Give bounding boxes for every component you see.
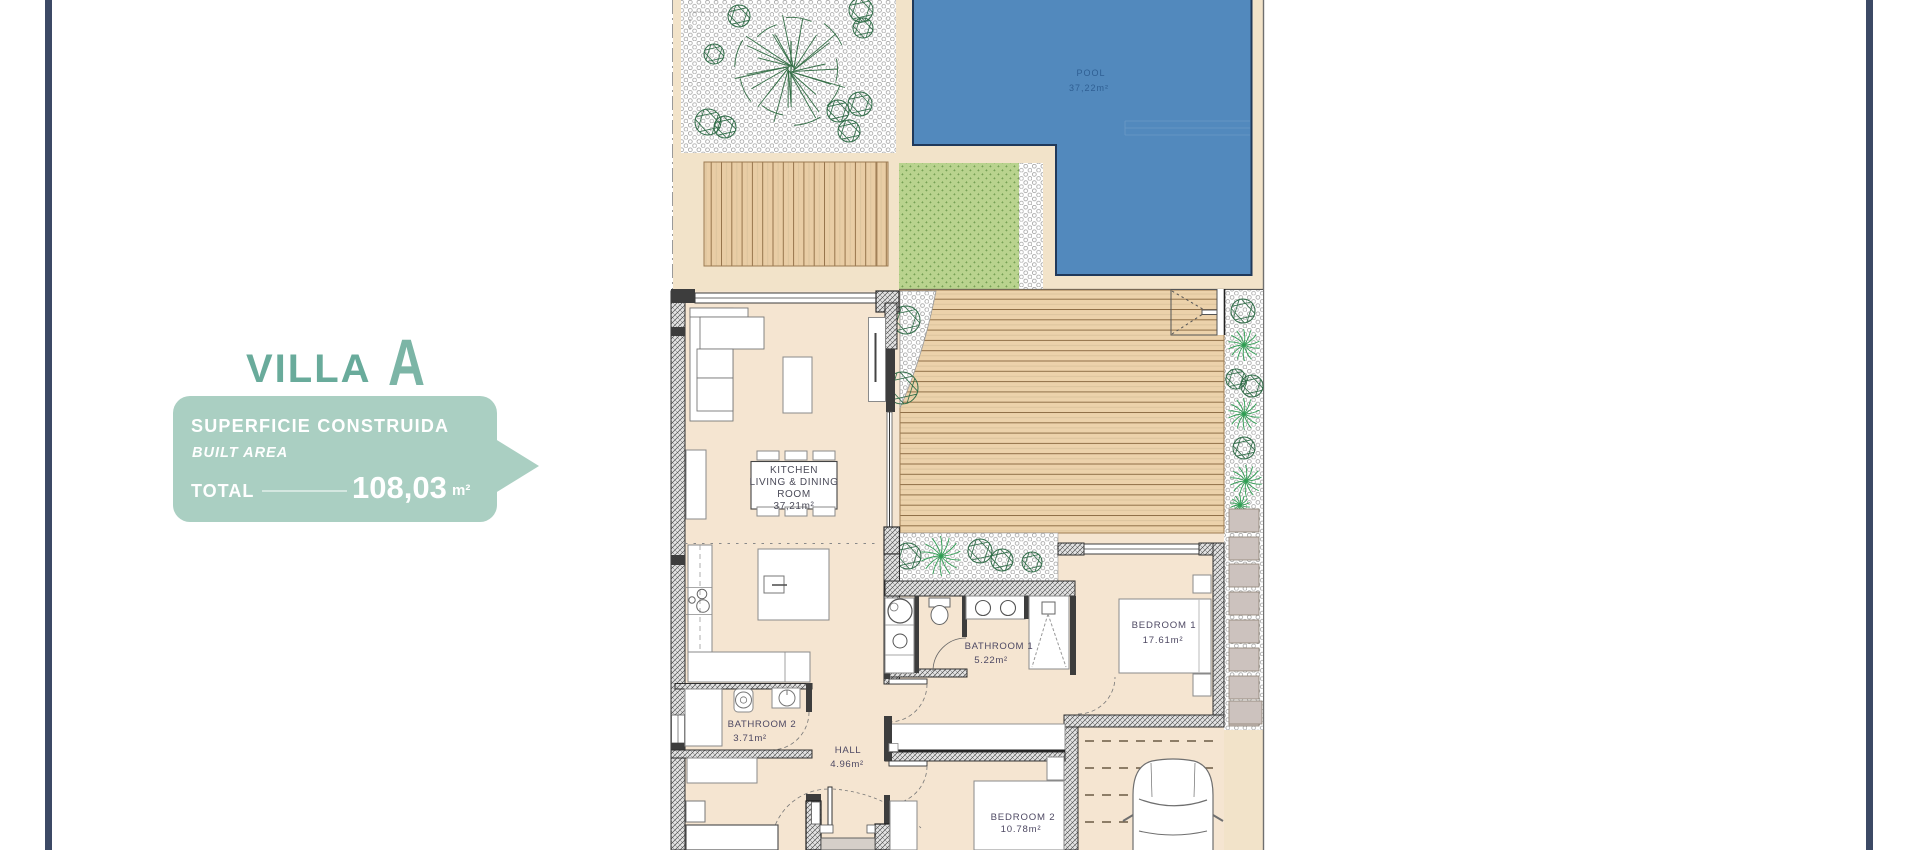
svg-text:SUPERFICIE CONSTRUIDA: SUPERFICIE CONSTRUIDA	[191, 416, 449, 436]
svg-text:BUILT AREA: BUILT AREA	[192, 445, 288, 461]
svg-text:HALL: HALL	[835, 745, 861, 756]
svg-text:VILLA: VILLA	[246, 347, 372, 391]
svg-text:BATHROOM 1: BATHROOM 1	[965, 641, 1034, 652]
svg-text:BEDROOM 2: BEDROOM 2	[991, 812, 1056, 823]
svg-text:3.71m²: 3.71m²	[733, 733, 767, 744]
svg-text:5.22m²: 5.22m²	[974, 655, 1008, 666]
svg-text:LIVING & DINING: LIVING & DINING	[749, 477, 838, 488]
svg-text:TOTAL: TOTAL	[191, 481, 254, 501]
svg-text:BEDROOM 1: BEDROOM 1	[1132, 620, 1197, 631]
svg-text:ROOM: ROOM	[777, 489, 811, 500]
svg-text:37,21m²: 37,21m²	[774, 501, 815, 512]
svg-text:4.96m²: 4.96m²	[830, 759, 864, 770]
svg-text:108,03: 108,03	[352, 470, 447, 505]
svg-text:37,22m²: 37,22m²	[1069, 83, 1109, 93]
svg-text:POOL: POOL	[1076, 68, 1105, 78]
svg-text:17.61m²: 17.61m²	[1143, 635, 1184, 646]
svg-text:m²: m²	[452, 482, 470, 499]
svg-text:A: A	[388, 325, 425, 399]
svg-text:10.78m²: 10.78m²	[1001, 824, 1042, 835]
svg-text:KITCHEN: KITCHEN	[770, 465, 818, 476]
svg-text:BATHROOM 2: BATHROOM 2	[728, 719, 797, 730]
